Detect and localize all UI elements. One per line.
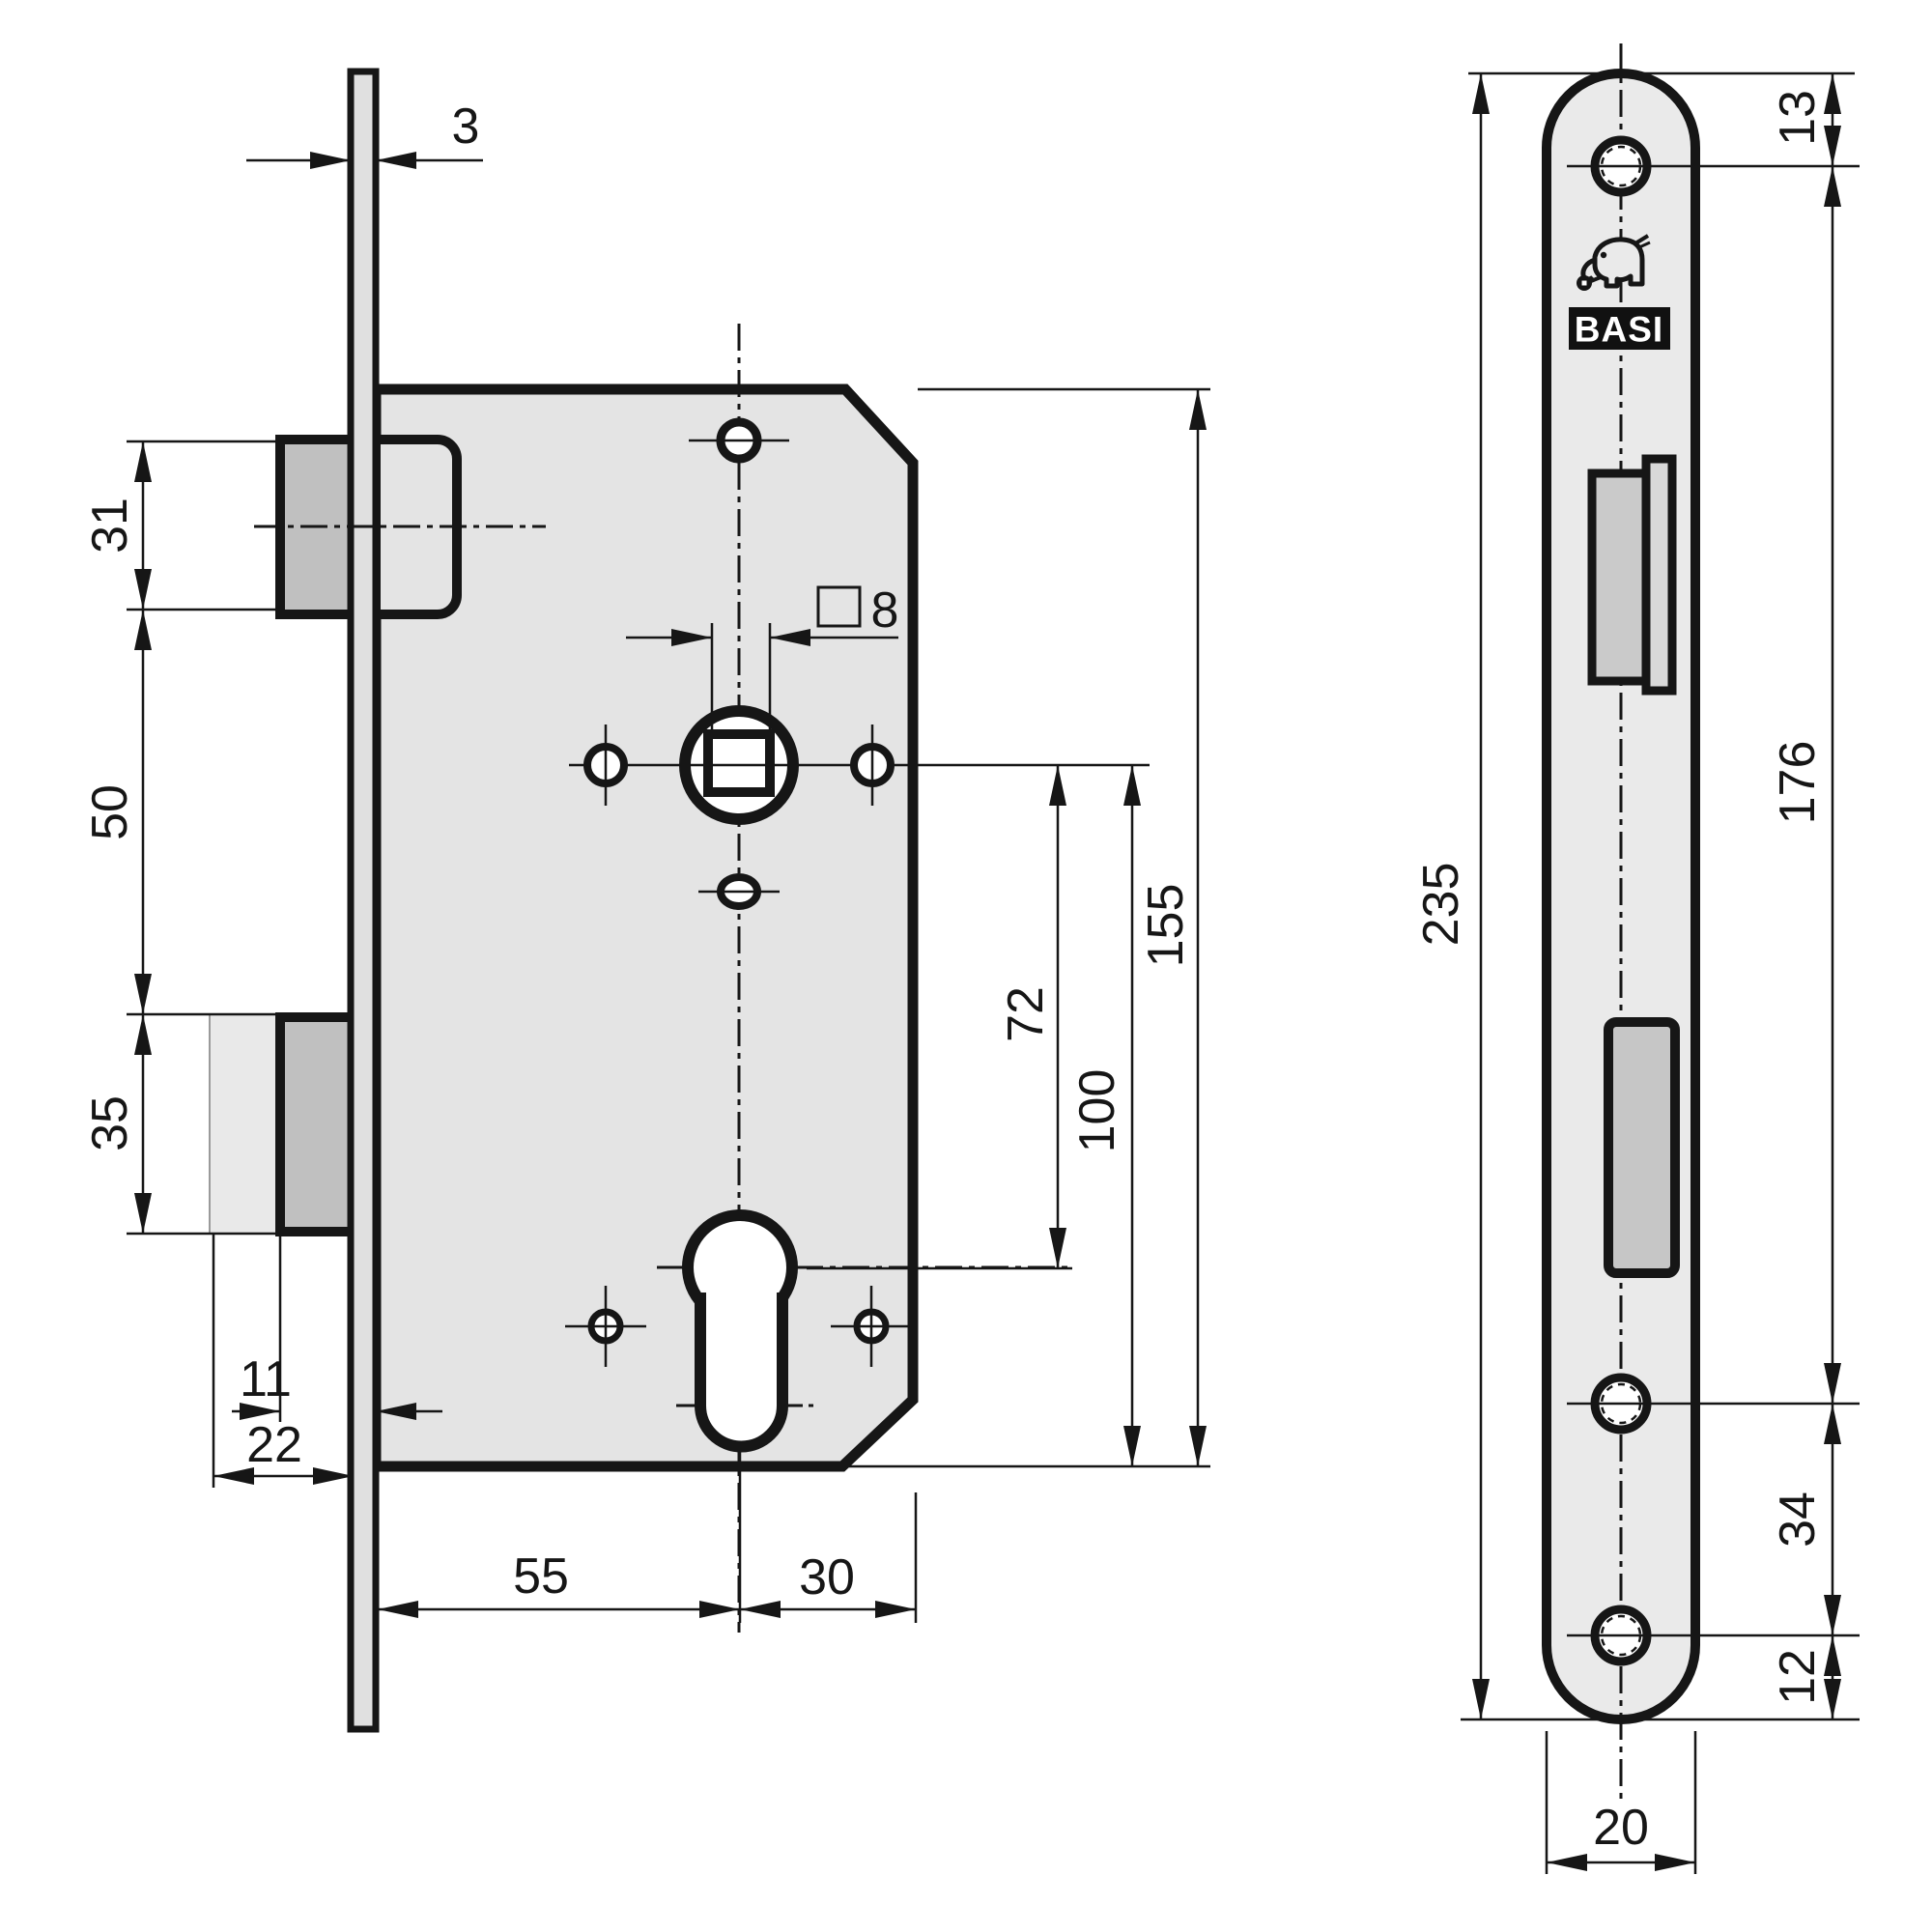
dim-label-plate-length: 235	[1413, 863, 1469, 947]
side-view	[210, 71, 1150, 1729]
dim-handle-to-cylinder: 72	[998, 765, 1058, 1268]
deadbolt-cutout	[1608, 1022, 1675, 1273]
latch-tip	[1646, 459, 1672, 691]
dim-label-lower-hole-spacing: 34	[1770, 1492, 1826, 1548]
basi-logo: BASI	[1569, 307, 1670, 350]
dim-label-bottom-hole-to-end: 12	[1770, 1649, 1826, 1705]
dim-label-latch-height: 31	[82, 497, 138, 554]
dim-deadbolt-height: 35	[82, 1014, 143, 1234]
dim-bolt-throw-double: 22	[213, 1417, 354, 1476]
stem-junction-mask	[706, 1271, 777, 1304]
dim-label-backset: 55	[513, 1548, 569, 1605]
dim-plate-top-to-hole: 13	[1770, 73, 1833, 166]
dim-label-case-height: 155	[1138, 884, 1194, 968]
dim-label-axis-to-case-back: 30	[799, 1549, 855, 1605]
dim-label-handle-to-cylinder: 72	[998, 986, 1054, 1042]
dim-label-latch-to-deadbolt: 50	[82, 784, 138, 840]
dim-plate-width: 20	[1547, 1800, 1695, 1862]
dim-axis-to-case-back: 30	[740, 1549, 916, 1609]
dim-latch-to-deadbolt: 50	[82, 610, 143, 1014]
technical-drawing-page: 3 31 50 35 11 22 55	[0, 0, 1932, 1932]
cylinder-hole-stem	[700, 1293, 782, 1447]
dim-hole-spacing-main: 176	[1770, 166, 1833, 1404]
dim-backset: 55	[378, 1548, 740, 1609]
dim-handle-to-case-bottom: 100	[1069, 765, 1132, 1466]
deadbolt-thrown-ghost	[210, 1014, 283, 1234]
dim-label-bolt-throw-single: 11	[240, 1351, 292, 1407]
dim-plate-length: 235	[1413, 73, 1481, 1719]
dim-label-hole-spacing-main: 176	[1770, 741, 1826, 825]
dim-label-plate-width: 20	[1593, 1800, 1649, 1856]
mortise-lock-drawing: 3 31 50 35 11 22 55	[0, 0, 1932, 1932]
dim-label-plate-thickness: 3	[452, 99, 480, 155]
dim-label-plate-top-to-hole: 13	[1770, 90, 1826, 146]
front-view: BASI	[1547, 43, 1695, 1799]
dim-latch-height: 31	[82, 441, 143, 610]
faceplate-edge	[351, 71, 376, 1729]
dim-label-bolt-throw-double: 22	[246, 1417, 302, 1473]
dim-label-spindle-square: 8	[871, 582, 899, 639]
dim-case-height: 155	[1138, 389, 1198, 1466]
dim-label-handle-to-case-bottom: 100	[1069, 1069, 1125, 1153]
dim-lower-hole-spacing: 34	[1770, 1404, 1833, 1635]
spindle-square-hole	[708, 734, 770, 792]
latch-cutout	[1592, 473, 1646, 681]
dim-label-deadbolt-height: 35	[82, 1095, 138, 1151]
deadbolt	[280, 1017, 355, 1232]
dim-bottom-hole-to-end: 12	[1770, 1635, 1833, 1719]
basi-logo-text: BASI	[1575, 310, 1663, 350]
